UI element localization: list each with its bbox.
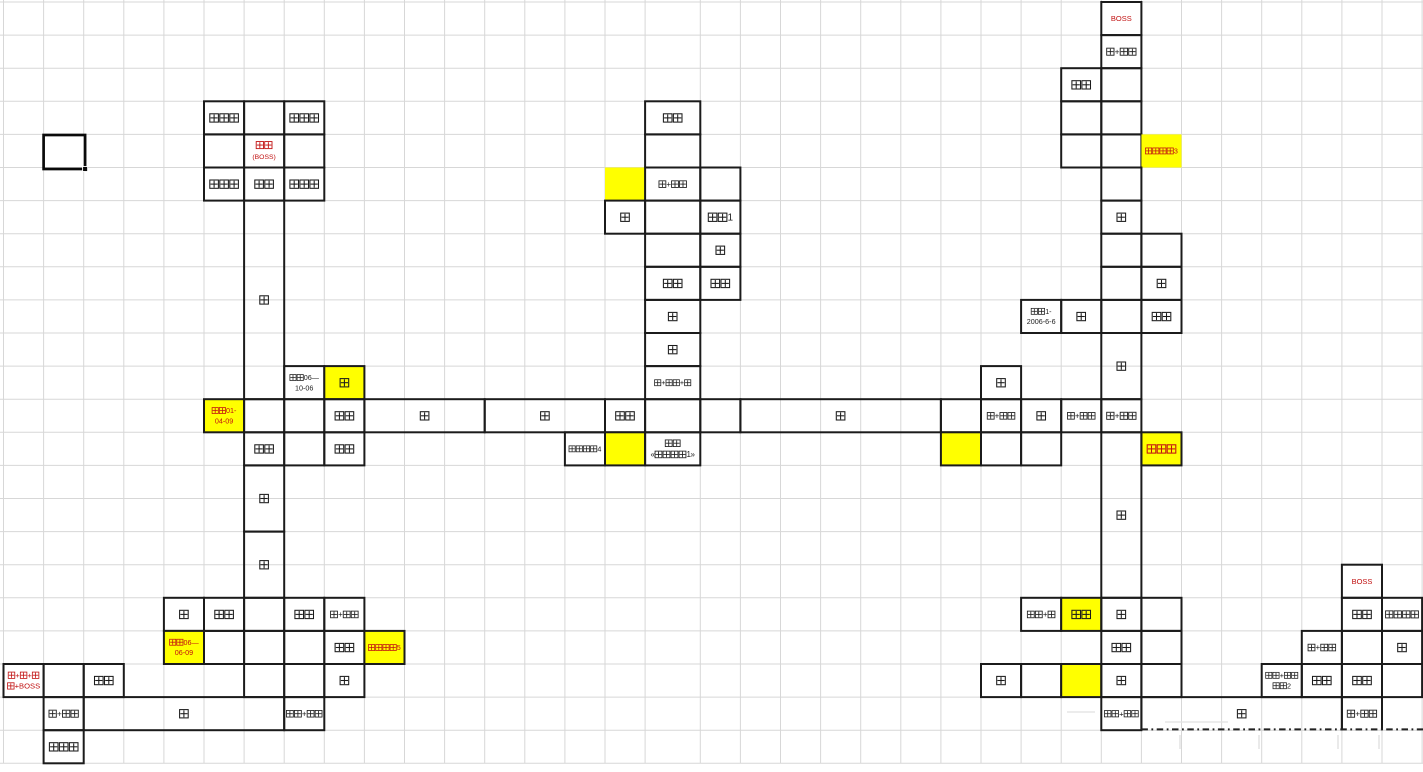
svg-text:BOSS: BOSS [1352, 577, 1373, 586]
svg-text:+: + [1043, 610, 1048, 619]
svg-text:+: + [1355, 709, 1360, 719]
svg-text:+: + [680, 378, 684, 387]
svg-text:»: » [690, 450, 695, 459]
svg-text:+: + [1075, 412, 1080, 421]
svg-text:(BOSS): (BOSS) [252, 154, 275, 161]
svg-text:BOSS: BOSS [1111, 14, 1132, 23]
svg-text:04-09: 04-09 [215, 417, 233, 426]
svg-text:06-09: 06-09 [175, 648, 193, 657]
svg-text:+: + [1315, 643, 1320, 652]
svg-text:+: + [57, 709, 62, 719]
svg-text:+: + [661, 378, 665, 387]
svg-text:01-: 01- [226, 406, 237, 415]
svg-text:1: 1 [728, 213, 734, 224]
svg-text:+BOSS: +BOSS [15, 682, 41, 691]
svg-text:+: + [995, 412, 1000, 421]
svg-text:2: 2 [1287, 681, 1291, 690]
svg-text:+: + [1119, 709, 1124, 718]
svg-text:4: 4 [597, 444, 601, 453]
svg-text:06—: 06— [304, 373, 320, 382]
svg-text:06—: 06— [184, 638, 200, 647]
svg-text:+: + [338, 610, 343, 619]
svg-text:+: + [1115, 411, 1120, 421]
svg-text:5: 5 [397, 643, 401, 652]
svg-text:10-06: 10-06 [295, 383, 313, 392]
svg-text:2006-6-6: 2006-6-6 [1027, 317, 1056, 326]
svg-text:3: 3 [1174, 147, 1178, 156]
svg-text:+: + [666, 180, 671, 189]
svg-text:+: + [302, 710, 307, 719]
svg-text:1-: 1- [1045, 307, 1052, 316]
svg-text:+: + [15, 671, 20, 680]
svg-text:+: + [1280, 671, 1284, 680]
svg-text:+: + [27, 671, 32, 680]
svg-text:+: + [1115, 47, 1120, 57]
